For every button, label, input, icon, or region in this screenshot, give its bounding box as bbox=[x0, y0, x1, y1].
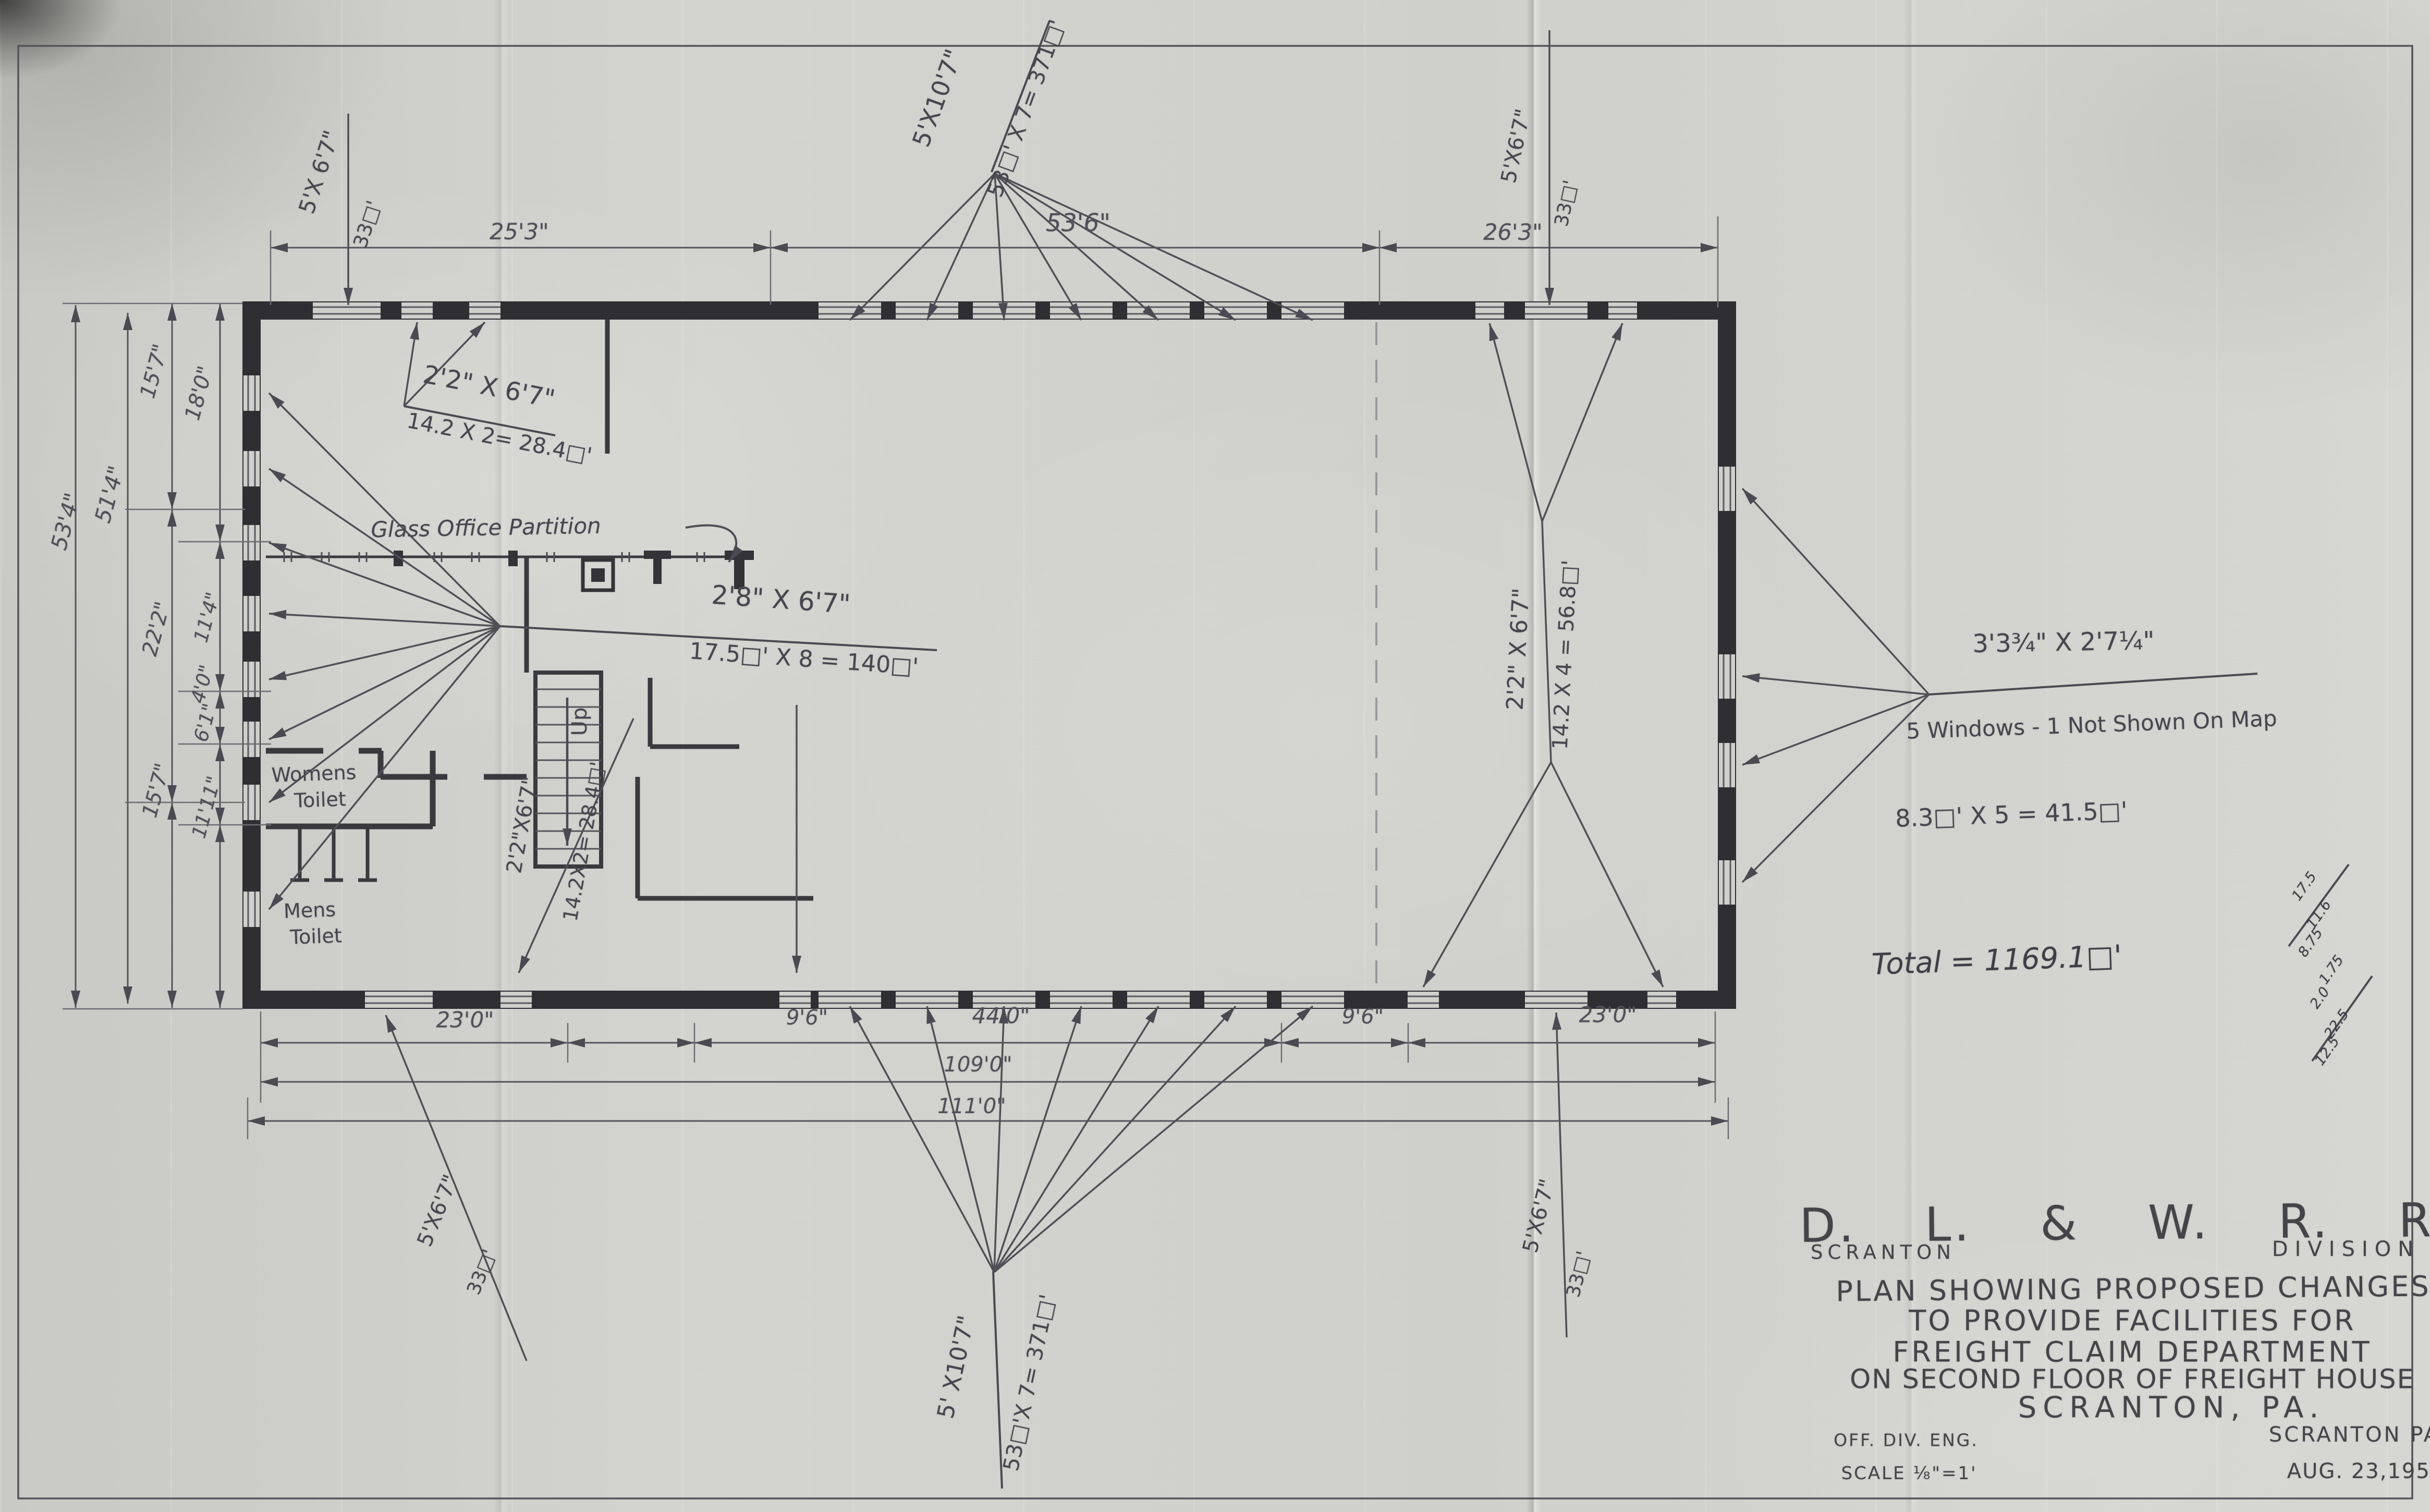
title-line-1: PLAN SHOWING PROPOSED CHANGES bbox=[1836, 1270, 2430, 1308]
dim-bottom-3: 44'0" bbox=[972, 1003, 1030, 1029]
mens-toilet-label: Mens bbox=[283, 898, 336, 922]
title-division-right: DIVISION bbox=[2272, 1237, 2420, 1261]
glass-partition-label: Glass Office Partition bbox=[371, 513, 601, 543]
title-location: SCRANTON PA bbox=[2269, 1423, 2430, 1447]
dim-bottom-5: 23'0" bbox=[1579, 1002, 1637, 1028]
womens-toilet-label: Toilet bbox=[294, 787, 347, 812]
dim-top-3: 26'3" bbox=[1483, 220, 1543, 246]
title-division-left: SCRANTON bbox=[1811, 1241, 1956, 1264]
title-office: OFF. DIV. ENG. bbox=[1834, 1430, 1979, 1450]
mens-toilet-label: Toilet bbox=[290, 924, 343, 948]
title-scale: SCALE ⅛"=1' bbox=[1841, 1463, 1977, 1484]
dim-top-2: 53'6" bbox=[1046, 209, 1110, 238]
title-date: AUG. 23,1957 bbox=[2287, 1459, 2430, 1483]
dim-bottom-4: 9'6" bbox=[1342, 1005, 1384, 1029]
dim-bottom-subtotal: 109'0" bbox=[944, 1053, 1012, 1077]
stair-up-label: Up bbox=[568, 708, 592, 736]
title-line-3: FREIGHT CLAIM DEPARTMENT bbox=[1892, 1336, 2372, 1369]
dim-bottom-total: 111'0" bbox=[937, 1094, 1006, 1118]
dim-bottom-1: 23'0" bbox=[436, 1007, 494, 1033]
dim-top-1: 25'3" bbox=[490, 219, 549, 245]
title-line-2: TO PROVIDE FACILITIES FOR bbox=[1909, 1304, 2355, 1337]
blueprint-sheet: 5'X 6'7" 33□' 5'X10'7" 53□' X 7= 371□' 5… bbox=[0, 0, 2430, 1512]
dim-bottom-2: 9'6" bbox=[786, 1006, 828, 1030]
title-line-5: SCRANTON, PA. bbox=[2018, 1391, 2325, 1425]
annotation-arrows bbox=[269, 21, 2372, 1489]
womens-toilet-label: Womens bbox=[271, 761, 357, 787]
annotation-right-wall-size: 3'3¾" X 2'7¼" bbox=[1972, 626, 2155, 659]
